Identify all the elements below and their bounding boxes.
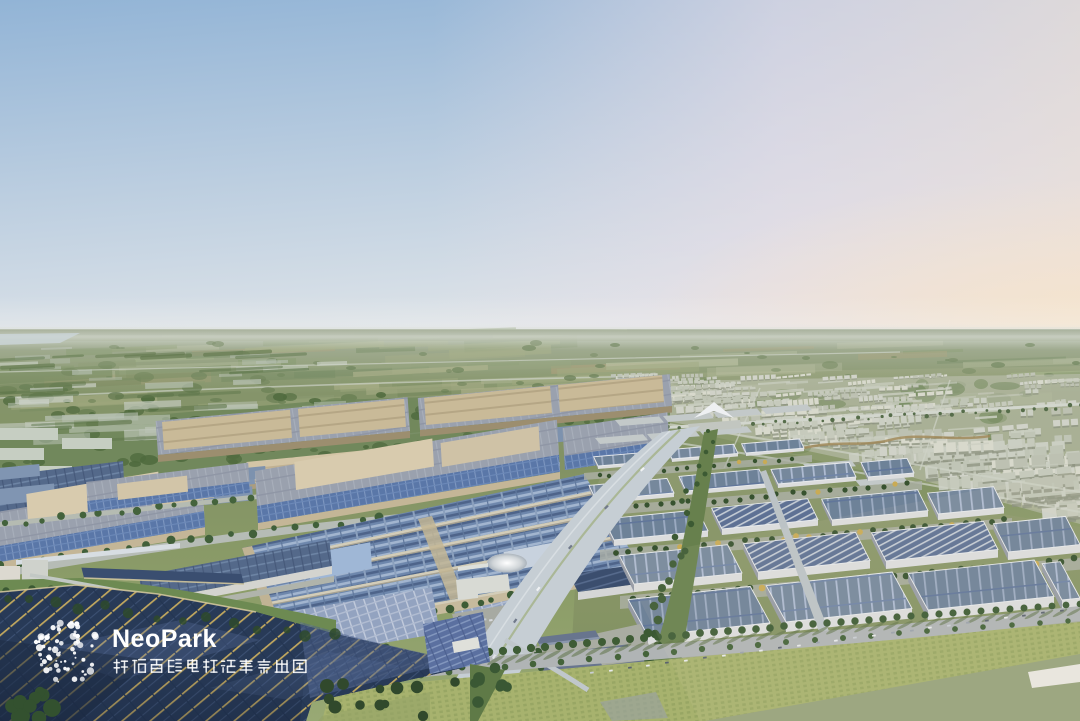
svg-text:NeoPark: NeoPark: [112, 625, 217, 653]
